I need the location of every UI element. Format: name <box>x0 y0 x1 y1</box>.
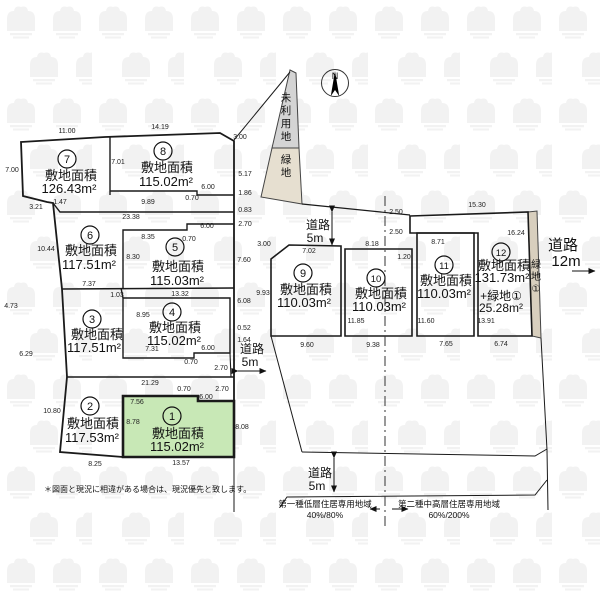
road-bottom-width: 5m <box>309 479 326 493</box>
dimension-label: 1.03 <box>110 292 124 299</box>
lot-1-number: 1 <box>169 411 175 423</box>
dimension-label: 0.70 <box>177 386 191 393</box>
dimension-label: 8.78 <box>126 419 140 426</box>
lot-11-number: 11 <box>439 261 449 272</box>
dimension-label: 1.20 <box>397 254 411 261</box>
road-east-name: 道路 <box>548 237 578 254</box>
dimension-label: 2.70 <box>214 365 228 372</box>
dimension-label: 7.65 <box>439 341 453 348</box>
green-strip-char: 地 <box>281 166 292 179</box>
unused-strip-char: 未 <box>281 92 292 104</box>
dimension-label: 7.31 <box>145 346 159 353</box>
green_right-strip-char: 緑 <box>531 258 541 271</box>
dimension-label: 6.00 <box>201 345 215 352</box>
dimension-label: 8.18 <box>365 241 379 248</box>
dimension-label: 8.95 <box>136 312 150 319</box>
dimension-label: 8.25 <box>88 461 102 468</box>
site-plan-page: 第一種低層住居専用地域 40%/80% 第二種中高層住居専用地域 60%/200… <box>0 0 600 600</box>
lot-2-area-value: 117.53m² <box>65 430 120 445</box>
green_right-strip-char: 地 <box>531 270 541 283</box>
dimension-label: 7.01 <box>111 159 125 166</box>
lot-10-number: 10 <box>371 274 382 285</box>
lot-12-area-value: 131.73m² <box>475 270 531 285</box>
dimension-label: 13.57 <box>172 460 190 467</box>
dimension-label: 15.30 <box>468 202 486 209</box>
dimension-label: 2.50 <box>389 229 403 236</box>
dimension-label: 6.00 <box>200 223 214 230</box>
lot-5-area-value: 115.03m² <box>150 273 205 288</box>
lot-8-area-label: 敷地面積 <box>141 160 193 175</box>
unused-strip-char: 利 <box>281 105 292 117</box>
lot-7-number: 7 <box>64 154 70 166</box>
lot-5-area-label: 敷地面積 <box>152 259 204 274</box>
dimension-label: 23.38 <box>122 214 140 221</box>
dimension-label: 8.71 <box>431 239 445 246</box>
dimension-label: 0.70 <box>182 236 196 243</box>
dimension-label: 5.17 <box>238 171 252 178</box>
dimension-label: 9.93 <box>256 290 270 297</box>
lot-6-number: 6 <box>87 230 93 242</box>
map-footnote: ＊図面と現況に相違がある場合は、現況優先と致します。 <box>44 484 251 494</box>
dimension-label: 6.08 <box>237 298 251 305</box>
dimension-label: 2.70 <box>215 386 229 393</box>
dimension-label: 2.70 <box>238 221 252 228</box>
dimension-label: 1.47 <box>53 199 67 206</box>
dimension-label: 0.83 <box>238 207 252 214</box>
lot-6-area-value: 117.51m² <box>62 257 117 272</box>
dimension-label: 14.19 <box>151 124 169 131</box>
dimension-label: 7.37 <box>82 281 96 288</box>
lot-9-number: 9 <box>300 268 306 280</box>
unused-strip-label: 未利用地 <box>281 92 292 143</box>
lot-1-area-value: 115.02m² <box>150 439 205 454</box>
zoning-right-ratio: 60%/200% <box>428 510 470 520</box>
dimension-label: 8.35 <box>141 234 155 241</box>
zoning-left-name: 第一種低層住居専用地域 <box>278 499 372 509</box>
dimension-label: 8.30 <box>126 254 140 261</box>
dimension-label: 0.70 <box>184 359 198 366</box>
lot-2-area-label: 敷地面積 <box>67 416 119 431</box>
lot-2-number: 2 <box>87 401 93 413</box>
dimension-label: 1.64 <box>237 337 251 344</box>
dimension-label: 3.00 <box>233 134 247 141</box>
dimension-label: 10.44 <box>37 246 55 253</box>
dimension-label: 7.56 <box>130 399 144 406</box>
green-strip-char: 緑 <box>281 153 292 166</box>
dimension-label: 6.29 <box>19 351 33 358</box>
unused-strip-char: 地 <box>281 130 292 143</box>
lot-8-area-value: 115.02m² <box>139 174 194 189</box>
dimension-label: 3.21 <box>29 204 43 211</box>
zoning-right-name: 第二種中高層住居専用地域 <box>398 499 501 509</box>
dimension-label: 6.00 <box>201 184 215 191</box>
site-plan-map: 第一種低層住居専用地域 40%/80% 第二種中高層住居専用地域 60%/200… <box>0 0 600 600</box>
green_right-strip-label: 緑地① <box>531 258 541 295</box>
road-east-width: 12m <box>551 253 580 270</box>
dimension-label: 10.80 <box>43 408 61 415</box>
road-top-width: 5m <box>307 231 324 245</box>
dimension-label: 8.08 <box>235 424 249 431</box>
road-bottom-name: 道路 <box>308 465 332 480</box>
road-top-name: 道路 <box>306 217 330 232</box>
lot-10-area-value: 110.03m² <box>352 299 407 314</box>
lot-5-number: 5 <box>172 242 178 254</box>
dimension-label: 11.85 <box>348 318 365 325</box>
dimension-label: 0.70 <box>185 195 199 202</box>
lot-9-area-value: 110.03m² <box>277 295 332 310</box>
dimension-label: 11.00 <box>59 128 76 135</box>
dimension-label: 9.38 <box>366 342 380 349</box>
green_right-strip-char: ① <box>532 284 541 295</box>
dimension-label: 16.24 <box>507 230 525 237</box>
dimension-label: 21.29 <box>141 380 159 387</box>
lot-4-number: 4 <box>169 307 175 319</box>
dimension-label: 13.91 <box>477 318 495 325</box>
dimension-label: 11.60 <box>418 318 435 325</box>
lot-12-extra-area: 25.28m² <box>479 301 523 315</box>
lot-3-area-value: 117.51m² <box>67 340 122 355</box>
dimension-label: 4.73 <box>4 303 18 310</box>
dimension-label: 3.00 <box>257 241 271 248</box>
dimension-label: 0.52 <box>237 325 251 332</box>
dimension-label: 1.86 <box>238 190 252 197</box>
dimension-label: 9.89 <box>141 199 155 206</box>
dimension-label: 7.60 <box>237 257 251 264</box>
unused-strip-char: 用 <box>281 118 292 130</box>
zoning-left-ratio: 40%/80% <box>307 510 344 520</box>
lot-7-area-value: 126.43m² <box>42 181 98 196</box>
dimension-label: 2.50 <box>389 209 403 216</box>
lot-6-area-label: 敷地面積 <box>65 243 117 258</box>
lot-11-area-value: 110.03m² <box>417 286 472 301</box>
dimension-label: 13.32 <box>171 291 189 298</box>
lot-3-number: 3 <box>89 314 95 326</box>
dimension-label: 6.00 <box>199 394 213 401</box>
dimension-label: 9.60 <box>300 342 314 349</box>
road-ns-width: 5m <box>242 355 259 369</box>
lot-8-number: 8 <box>160 146 166 158</box>
dimension-label: 6.74 <box>494 341 508 348</box>
dimension-label: 7.02 <box>302 248 316 255</box>
dimension-label: 7.00 <box>5 167 19 174</box>
